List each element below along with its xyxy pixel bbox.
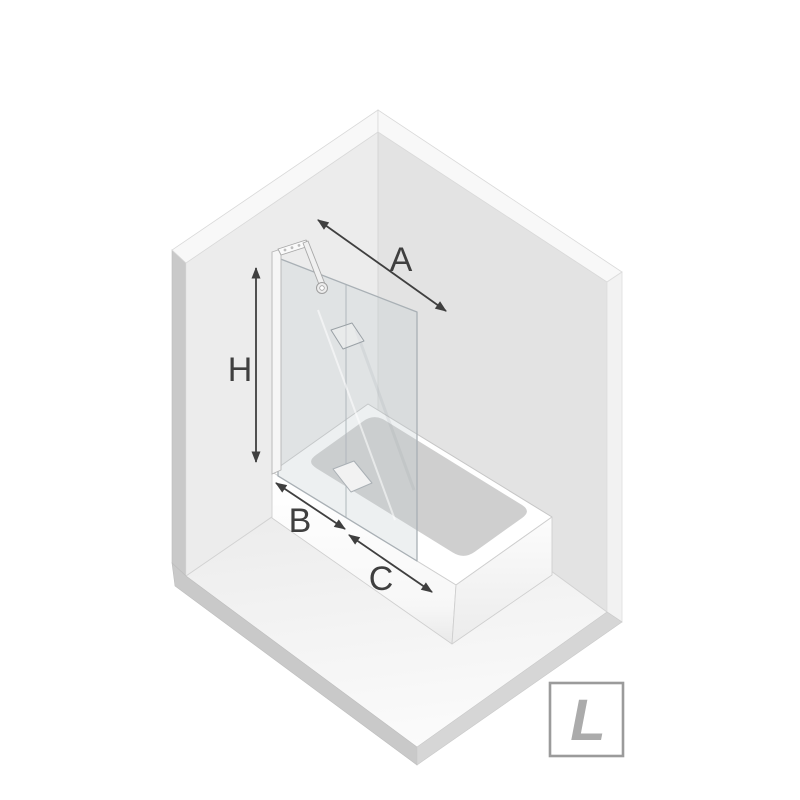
bracket-screw-3 bbox=[298, 244, 301, 247]
diagram-stage: A H B C L bbox=[0, 0, 800, 800]
wall-side-edge-left bbox=[172, 250, 186, 576]
orientation-badge: L bbox=[550, 683, 623, 756]
bracket-screw-2 bbox=[291, 246, 294, 249]
dim-label-c: C bbox=[369, 560, 394, 598]
bathtub-screen-isometric-diagram: A H B C L bbox=[0, 0, 800, 800]
bracket-screw-1 bbox=[284, 249, 287, 252]
wall-side-edge-right bbox=[607, 272, 622, 622]
dim-label-a: A bbox=[390, 241, 413, 279]
orientation-badge-letter: L bbox=[570, 688, 605, 753]
support-clamp-screw bbox=[320, 286, 325, 291]
glass-wall-profile bbox=[272, 249, 281, 474]
dim-label-b: B bbox=[289, 502, 312, 540]
dim-label-h: H bbox=[228, 351, 253, 389]
